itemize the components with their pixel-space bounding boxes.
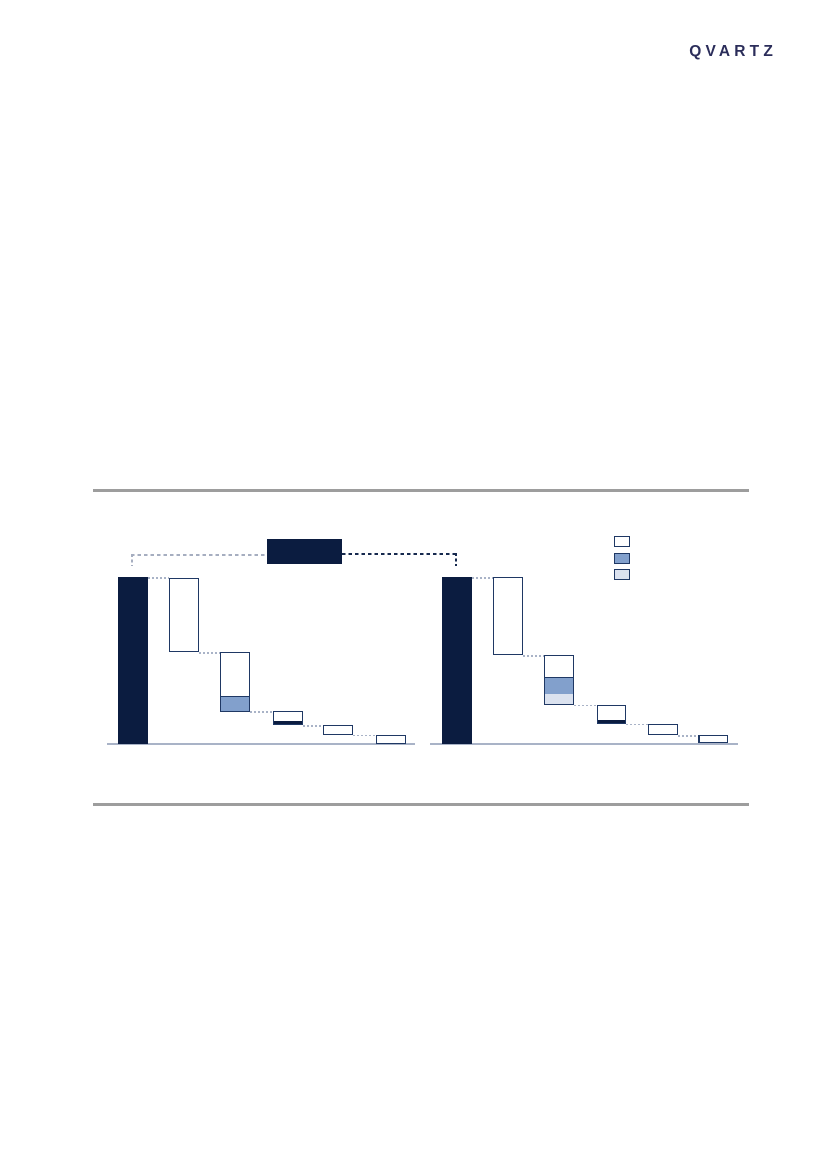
bar-segment-navy [274, 721, 302, 724]
connector-left-1 [148, 577, 169, 579]
callout-dash-left [131, 554, 267, 556]
waterfall-bar-left-1 [118, 577, 148, 744]
connector-left-2 [199, 652, 220, 654]
connector-left-5 [353, 735, 376, 737]
bar-segment-stack [274, 721, 302, 724]
waterfall-bar-left-2 [169, 578, 199, 652]
axis-baseline-left [107, 743, 415, 745]
waterfall-bar-left-3 [220, 652, 250, 712]
callout-drop-right [455, 553, 457, 567]
legend-swatch-steel-series [614, 553, 630, 564]
callout-dash-right [342, 553, 457, 555]
slide-page: QVARTZ [0, 0, 827, 1170]
bar-segment-navy [598, 720, 625, 723]
waterfall-bar-right-6 [698, 735, 728, 743]
bar-segment-light_blue [545, 694, 573, 704]
waterfall-bar-right-5 [648, 724, 678, 736]
connector-left-4 [303, 725, 324, 727]
callout-drop-left [131, 554, 133, 566]
legend-swatch-light-series [614, 569, 630, 580]
bar-segment-steel [221, 696, 249, 711]
connector-left-3 [250, 711, 273, 713]
connector-right-3 [574, 705, 596, 707]
legend-swatch-outline-series [614, 536, 630, 547]
callout-box [267, 539, 342, 564]
waterfall-bar-left-6 [376, 735, 406, 744]
bar-segment-stack [545, 677, 573, 705]
bar-segment-stack [598, 720, 625, 723]
connector-right-5 [678, 735, 699, 737]
waterfall-bar-right-1 [442, 577, 472, 744]
connector-right-4 [626, 724, 648, 726]
waterfall-bar-left-5 [323, 725, 353, 735]
axis-baseline-right [430, 743, 738, 745]
waterfall-bar-right-3 [544, 655, 574, 705]
connector-right-1 [472, 577, 493, 579]
waterfall-bar-right-2 [493, 577, 523, 655]
bar-segment-steel [545, 677, 573, 695]
waterfall-bar-left-4 [273, 711, 303, 725]
connector-right-2 [523, 655, 545, 657]
figure-canvas [0, 0, 827, 1170]
waterfall-bar-right-4 [597, 705, 626, 724]
bar-segment-stack [221, 696, 249, 711]
